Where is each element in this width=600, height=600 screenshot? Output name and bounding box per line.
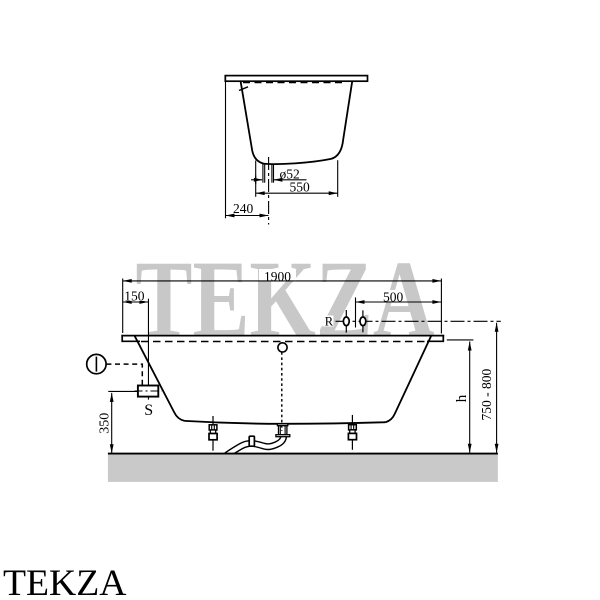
svg-text:h: h	[454, 394, 470, 402]
svg-text:550: 550	[290, 180, 311, 195]
svg-text:R: R	[325, 314, 334, 328]
svg-text:750 - 800: 750 - 800	[479, 369, 494, 421]
svg-text:240: 240	[233, 201, 254, 216]
svg-text:1900: 1900	[264, 269, 291, 284]
svg-text:350: 350	[98, 413, 113, 434]
svg-text:TEKZA: TEKZA	[3, 563, 127, 600]
svg-text:150: 150	[124, 288, 145, 303]
svg-text:500: 500	[383, 289, 404, 304]
svg-text:S: S	[144, 402, 153, 419]
